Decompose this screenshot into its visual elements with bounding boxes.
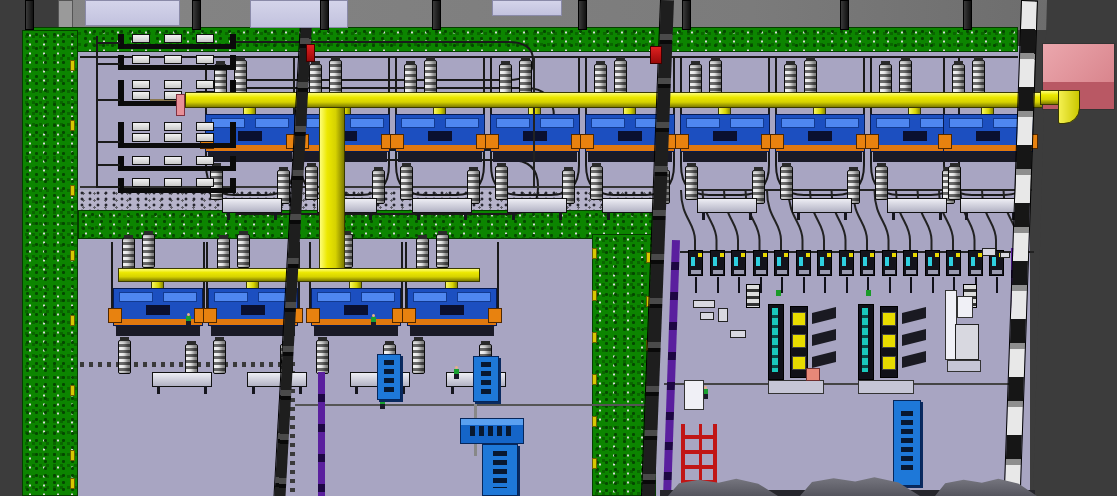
yellow-tote [792, 334, 806, 348]
rack-feeder-trunk [96, 36, 98, 188]
storage-rack[interactable] [118, 34, 236, 49]
feeder-part [756, 257, 760, 266]
feeder-station[interactable] [968, 250, 983, 276]
work-bench[interactable] [792, 198, 852, 213]
rack-item [132, 178, 150, 187]
feeder-part [992, 270, 1002, 274]
wall-marker [70, 478, 75, 489]
feeder-part [713, 257, 717, 266]
grass-strip-left [22, 30, 78, 496]
side-bracket [902, 329, 926, 346]
insulator-cylinder [804, 60, 817, 94]
rack-item [196, 55, 214, 64]
feeder-part [842, 270, 852, 274]
insulator-cylinder [875, 166, 888, 200]
status-dot [866, 290, 871, 296]
feeder-part [713, 270, 723, 274]
rack-endcap [230, 178, 236, 193]
machine-part [238, 131, 263, 141]
rack-item [132, 80, 150, 89]
feeder-part [734, 257, 738, 266]
insulator-cylinder [142, 234, 155, 268]
machine-part [580, 134, 594, 149]
rack-beam [118, 143, 236, 148]
machine-part [540, 118, 573, 128]
side-bracket [902, 351, 926, 368]
rack-endcap [230, 156, 236, 171]
rack-item [164, 178, 182, 187]
insulator-cylinder [416, 238, 429, 272]
machine-part [312, 319, 400, 325]
machine-part [108, 308, 122, 323]
feeder-station[interactable] [710, 250, 725, 276]
feeder-part [971, 270, 981, 274]
feeder-part [863, 257, 867, 266]
wall-marker [70, 120, 75, 131]
sign-board-right-bay[interactable] [893, 400, 921, 486]
sign-board-1[interactable] [377, 354, 401, 400]
rack-beam [118, 44, 236, 49]
purple-strip-left-wall [318, 372, 325, 496]
yellow-tote [882, 312, 896, 326]
rack-item [164, 55, 182, 64]
wall-marker [70, 250, 75, 261]
feeder-part [720, 253, 724, 257]
machine-part [730, 118, 763, 128]
rack-item [196, 122, 214, 131]
insulator-cylinder [495, 166, 508, 200]
feeder-part [799, 257, 803, 266]
wall-marker [70, 315, 75, 326]
machine-table[interactable] [680, 114, 770, 152]
feeder-station[interactable] [774, 250, 789, 276]
machine-part [491, 145, 579, 151]
feeder-part [842, 257, 846, 266]
rack-item [164, 34, 182, 43]
skylight-panel [85, 0, 180, 26]
white-machine[interactable] [945, 286, 991, 374]
machine-base [947, 360, 981, 372]
feeder-station[interactable] [839, 250, 854, 276]
storage-rack[interactable] [118, 156, 236, 171]
overhead-pipe-lower-line[interactable] [118, 268, 480, 282]
machine-part [163, 292, 196, 302]
wall-marker [592, 248, 597, 259]
white-cabinet-divider[interactable] [684, 380, 704, 410]
factory-3d-viewport [0, 0, 1117, 496]
rack-endcap [230, 122, 236, 148]
feeder-part [928, 257, 932, 266]
rack-item [132, 133, 150, 142]
machine-part [618, 131, 643, 141]
teal-light-strip [862, 308, 868, 372]
insulator-cylinder [972, 60, 985, 94]
storage-rack[interactable] [118, 55, 236, 70]
rack-item [164, 122, 182, 131]
roof-column [25, 0, 34, 30]
wall-marker [592, 332, 597, 343]
feeder-part [870, 253, 874, 257]
hoist-stack[interactable] [746, 284, 760, 308]
sign-board-3d-vertical[interactable] [482, 444, 518, 496]
insulator-cylinder [519, 60, 532, 94]
loop-boundary [533, 56, 535, 188]
side-bracket [902, 307, 926, 324]
fixture [693, 300, 715, 308]
machine-table[interactable] [311, 288, 401, 326]
rack-endcap [230, 55, 236, 70]
feeder-station[interactable] [817, 250, 832, 276]
worker-figure [185, 313, 192, 326]
insulator-cylinder [948, 166, 961, 200]
feeder-part [806, 253, 810, 257]
fixture [718, 308, 728, 322]
yellow-tote [792, 356, 806, 370]
insulator-cylinder [237, 234, 250, 268]
feeder-part [992, 257, 996, 266]
side-bracket [812, 329, 836, 346]
feeder-station[interactable] [860, 250, 875, 276]
machine-part [485, 134, 499, 149]
machine-part [390, 134, 404, 149]
worker-part [380, 404, 385, 409]
feeder-part [784, 253, 788, 257]
machine-part [686, 118, 719, 128]
machine-part [203, 308, 217, 323]
work-bench[interactable] [960, 198, 1020, 213]
rack-item [164, 156, 182, 165]
salmon-box [806, 368, 820, 381]
feeder-part [756, 270, 766, 274]
feeder-part [734, 270, 744, 274]
rack-machine[interactable] [768, 298, 838, 394]
feeder-part [928, 270, 938, 274]
feeder-part [777, 270, 787, 274]
fixture [982, 248, 996, 256]
machine-head [957, 296, 973, 318]
feeder-station[interactable] [882, 250, 897, 276]
rack-item [164, 80, 182, 89]
rack-item [132, 91, 150, 100]
insulator-cylinder [316, 340, 329, 374]
wall-marker [70, 60, 75, 71]
rack-endcap [118, 122, 124, 148]
fire-alarm-box-center[interactable] [650, 46, 662, 64]
insulator-cylinder [412, 340, 425, 374]
skylight-panel [250, 0, 348, 28]
insulator-cylinder [899, 60, 912, 94]
feeder-part [827, 253, 831, 257]
machine-table[interactable] [300, 114, 390, 152]
pink-machine-part[interactable] [176, 94, 185, 116]
machine-base [768, 380, 824, 394]
machine-part [255, 118, 288, 128]
feeder-part [949, 257, 953, 266]
work-bench[interactable] [887, 198, 947, 213]
rack-machine[interactable] [858, 298, 928, 394]
insulator-cylinder [305, 166, 318, 200]
worker-part [371, 322, 376, 327]
insulator-cylinder [122, 238, 135, 272]
rack-beam [118, 166, 236, 171]
machine-part [408, 319, 496, 325]
rack-feeder-line [96, 42, 120, 44]
rack-item [196, 34, 214, 43]
yellow-tote [882, 334, 896, 348]
machine-part [949, 118, 982, 128]
wall-marker [592, 374, 597, 385]
feeder-part [820, 257, 824, 266]
insulator-cylinder [436, 234, 449, 268]
machine-table[interactable] [395, 114, 485, 152]
rack-feeder-line [96, 99, 120, 101]
roof-column [682, 0, 691, 30]
rack-item [132, 156, 150, 165]
feeder-part [906, 270, 916, 274]
feeder-part [885, 257, 889, 266]
machine-part [306, 308, 320, 323]
machine-part [214, 292, 247, 302]
status-dot [776, 290, 781, 296]
fire-alarm-box-left[interactable] [306, 44, 315, 62]
machine-part [713, 131, 738, 141]
rack-item [196, 178, 214, 187]
feeder-part [892, 253, 896, 257]
work-bench[interactable] [697, 198, 757, 213]
insulator-cylinder [213, 340, 226, 374]
machine-part [344, 305, 369, 315]
worker-figure [453, 366, 460, 379]
machine-box [955, 324, 979, 360]
insulator-cylinder [400, 166, 413, 200]
rack-feeder-line [96, 63, 120, 65]
feeder-part [885, 270, 895, 274]
machine-table[interactable] [775, 114, 865, 152]
feeder-part [849, 253, 853, 257]
machine-part [361, 292, 394, 302]
feeder-station[interactable] [903, 250, 918, 276]
work-bench[interactable] [507, 198, 567, 213]
machine-part [396, 145, 484, 151]
roof-column [192, 0, 201, 30]
feeder-part [978, 253, 982, 257]
machine-part [146, 305, 171, 315]
wall-marker [592, 416, 597, 427]
rack-item [196, 156, 214, 165]
rack-item [132, 55, 150, 64]
wall-marker [70, 450, 75, 461]
rack-feeder-line [96, 164, 120, 166]
feeder-part [741, 253, 745, 257]
machine-part [445, 118, 478, 128]
machine-base [858, 380, 914, 394]
machine-part [776, 145, 864, 151]
wall-marker [592, 458, 597, 469]
machine-part [457, 292, 490, 302]
work-bench[interactable] [222, 198, 282, 213]
roof-column [963, 0, 972, 30]
feeder-station[interactable] [688, 250, 703, 276]
work-bench[interactable] [152, 372, 212, 387]
work-bench[interactable] [412, 198, 472, 213]
insulator-cylinder [329, 60, 342, 94]
feeder-station[interactable] [731, 250, 746, 276]
feeder-station[interactable] [753, 250, 768, 276]
insulator-cylinder [780, 166, 793, 200]
feeder-station[interactable] [796, 250, 811, 276]
feeder-part [691, 257, 695, 266]
machine-part [401, 118, 434, 128]
machine-part [317, 292, 350, 302]
fixture [730, 330, 746, 338]
rack-endcap [118, 80, 124, 106]
worker-part [454, 374, 459, 379]
machine-part [903, 131, 928, 141]
rack-beam [118, 188, 236, 193]
feeder-station[interactable] [925, 250, 940, 276]
sign-board-2[interactable] [473, 356, 499, 402]
yellow-tote [882, 356, 896, 370]
machine-part [681, 145, 769, 151]
feeder-part [691, 270, 701, 274]
feeder-part [820, 270, 830, 274]
machine-part [825, 118, 858, 128]
machine-part [876, 118, 909, 128]
machine-table[interactable] [407, 288, 497, 326]
insulator-cylinder [590, 166, 603, 200]
rack-feeder-line [96, 186, 120, 188]
machine-part [301, 145, 389, 151]
wall-marker [70, 185, 75, 196]
wall-marker [70, 385, 75, 396]
machine-part [428, 131, 453, 141]
feeder-part [698, 253, 702, 257]
feed-pipe-vertical[interactable] [319, 104, 345, 276]
rack-feeder-line [96, 141, 120, 143]
rack-item [196, 133, 214, 142]
fixture [700, 312, 714, 320]
feeder-part [777, 257, 781, 266]
machine-part [781, 118, 814, 128]
feeder-part [763, 253, 767, 257]
side-bracket [812, 307, 836, 324]
worker-figure [370, 314, 377, 327]
insulator-cylinder [424, 60, 437, 94]
feeder-part [913, 253, 917, 257]
feeder-part [956, 253, 960, 257]
feeder-part [799, 270, 809, 274]
feeder-part [971, 257, 975, 266]
sign-board-3d-top[interactable] [460, 418, 524, 444]
feeder-part [863, 270, 873, 274]
roof-column [578, 0, 587, 30]
rack-beam [118, 65, 236, 70]
insulator-cylinder [709, 60, 722, 94]
floor-line-right-bay [664, 383, 1018, 385]
machine-part [488, 308, 502, 323]
machine-part [119, 292, 152, 302]
worker-part [186, 321, 191, 326]
machine-part [440, 305, 465, 315]
machine-part [350, 118, 383, 128]
rack-item [132, 34, 150, 43]
exit-box-top[interactable] [1042, 43, 1115, 83]
insulator-cylinder [685, 166, 698, 200]
machine-table[interactable] [490, 114, 580, 152]
storage-rack[interactable] [118, 178, 236, 193]
insulator-cylinder [118, 340, 131, 374]
insulator-cylinder [614, 60, 627, 94]
machine-part [938, 134, 952, 149]
machine-part [413, 292, 446, 302]
roof-column [320, 0, 329, 30]
feeder-station[interactable] [946, 250, 961, 276]
feeder-part [935, 253, 939, 257]
rack-item [132, 122, 150, 131]
machine-part [496, 118, 529, 128]
machine-part [865, 134, 879, 149]
machine-part [241, 305, 266, 315]
teal-light-strip [772, 308, 778, 372]
rack-endcap [230, 34, 236, 49]
rack-item [164, 133, 182, 142]
yellow-tote [792, 312, 806, 326]
fixture [1000, 252, 1010, 258]
side-bracket [812, 351, 836, 368]
work-bench[interactable] [247, 372, 307, 387]
machine-part [770, 134, 784, 149]
roof-column [432, 0, 441, 30]
machine-part [808, 131, 833, 141]
roof-column [840, 0, 849, 30]
machine-part [675, 134, 689, 149]
skylight-panel [492, 0, 562, 16]
machine-part [976, 131, 1001, 141]
machine-part [402, 308, 416, 323]
wall-marker [592, 290, 597, 301]
overhead-pipe-main[interactable] [185, 92, 1062, 108]
machine-part [591, 118, 624, 128]
feeder-part [949, 270, 959, 274]
storage-rack[interactable] [118, 122, 236, 148]
insulator-cylinder [217, 238, 230, 272]
rack-item [196, 80, 214, 89]
feeder-part [906, 257, 910, 266]
